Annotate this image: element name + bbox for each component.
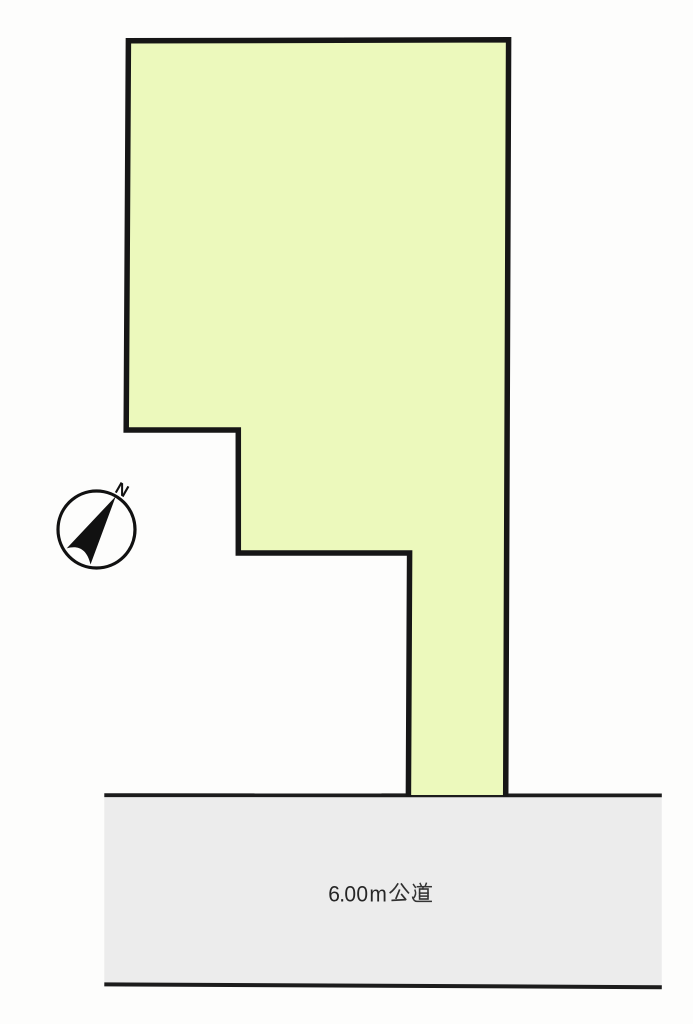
svg-text:m: m [369,881,387,907]
svg-text:0: 0 [356,881,368,907]
svg-text:6: 6 [328,881,340,907]
svg-text:0: 0 [344,881,356,907]
